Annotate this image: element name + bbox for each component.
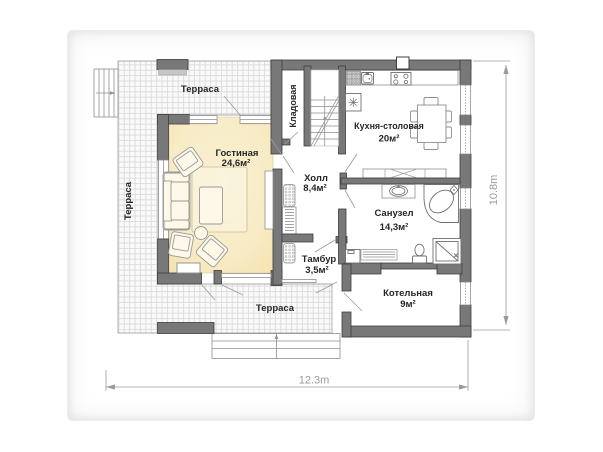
svg-text:Терраса: Терраса — [181, 84, 220, 95]
svg-text:20м²: 20м² — [379, 134, 400, 145]
svg-text:Терраса: Терраса — [256, 303, 295, 314]
svg-text:12.3m: 12.3m — [299, 375, 330, 387]
svg-text:10.8m: 10.8m — [488, 175, 500, 206]
svg-text:Терраса: Терраса — [123, 181, 134, 220]
svg-text:Котельная: Котельная — [383, 288, 433, 299]
svg-text:14,3м²: 14,3м² — [380, 222, 409, 233]
svg-text:9м²: 9м² — [400, 299, 415, 310]
svg-text:Санузел: Санузел — [374, 208, 413, 219]
svg-text:Кухня-столовая: Кухня-столовая — [354, 121, 424, 131]
svg-text:8,4м²: 8,4м² — [303, 183, 326, 194]
svg-text:24,6м²: 24,6м² — [222, 158, 251, 169]
svg-text:Кладовая: Кладовая — [288, 84, 298, 127]
svg-text:Тамбур: Тамбур — [302, 254, 337, 265]
svg-text:3,5м²: 3,5м² — [305, 265, 328, 276]
